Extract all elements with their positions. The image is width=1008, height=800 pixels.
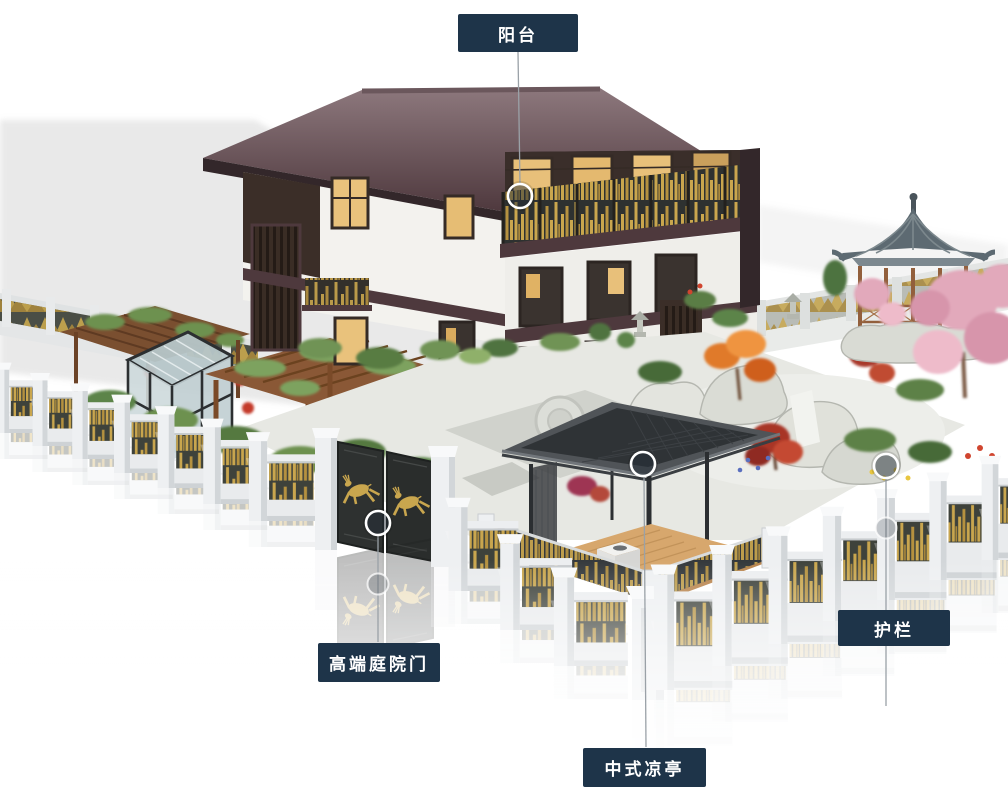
callout-label-courtyard-gate: 高端庭院门 xyxy=(318,643,440,682)
small-balcony xyxy=(302,278,372,311)
callout-label-balcony: 阳台 xyxy=(458,14,578,52)
scene-svg xyxy=(0,0,1008,800)
callout-label-chinese-pavilion: 中式凉亭 xyxy=(583,748,706,787)
reflection-fade xyxy=(0,555,1008,800)
villa-annotated-rendering: 阳台 高端庭院门 中式凉亭 护栏 xyxy=(0,0,1008,800)
callout-label-guardrail: 护栏 xyxy=(838,610,950,646)
